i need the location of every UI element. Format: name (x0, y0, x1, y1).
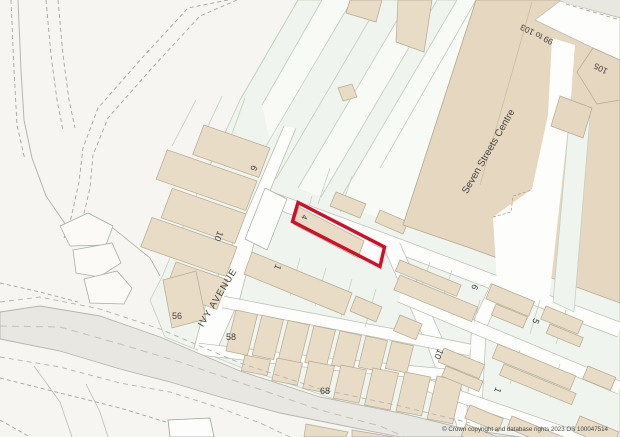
svg-text:58: 58 (226, 332, 236, 342)
svg-text:56: 56 (172, 311, 182, 321)
svg-text:68: 68 (320, 386, 330, 396)
svg-text:© Crown copyright and database: © Crown copyright and database rights 20… (442, 426, 608, 433)
